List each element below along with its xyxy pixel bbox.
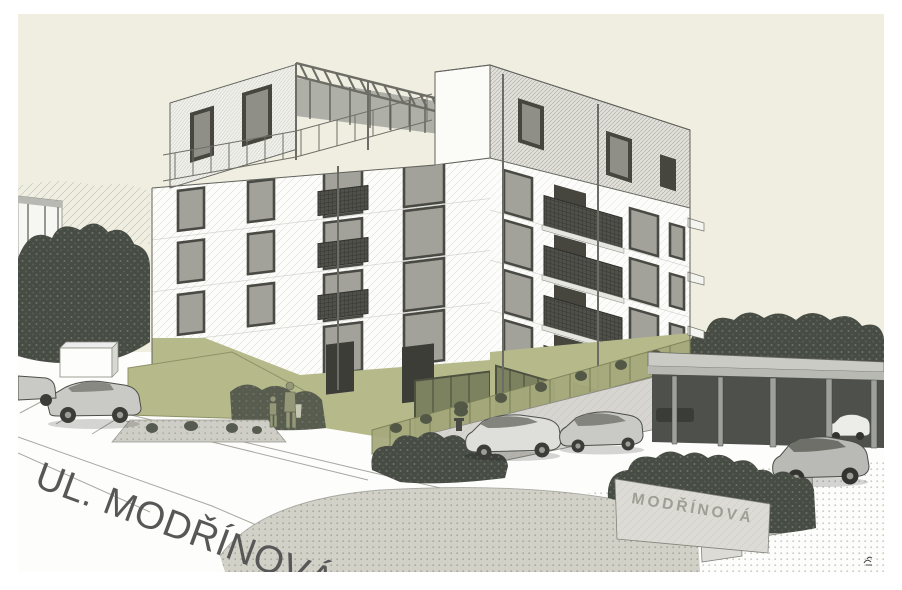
car-shadow (48, 419, 140, 429)
carport (648, 352, 884, 448)
shed-side (112, 342, 118, 377)
shed-roof (60, 342, 118, 348)
architectural-rendering: MODŘÍNOVÁ UL. MODŘÍNOVÁ (0, 0, 902, 590)
shed (60, 342, 118, 377)
shopping-bag (295, 404, 302, 418)
shed-front (60, 348, 112, 377)
scene-canvas: MODŘÍNOVÁ UL. MODŘÍNOVÁ (0, 0, 902, 590)
french-balcony-railings (318, 185, 368, 319)
corner-top-floor (435, 65, 490, 165)
